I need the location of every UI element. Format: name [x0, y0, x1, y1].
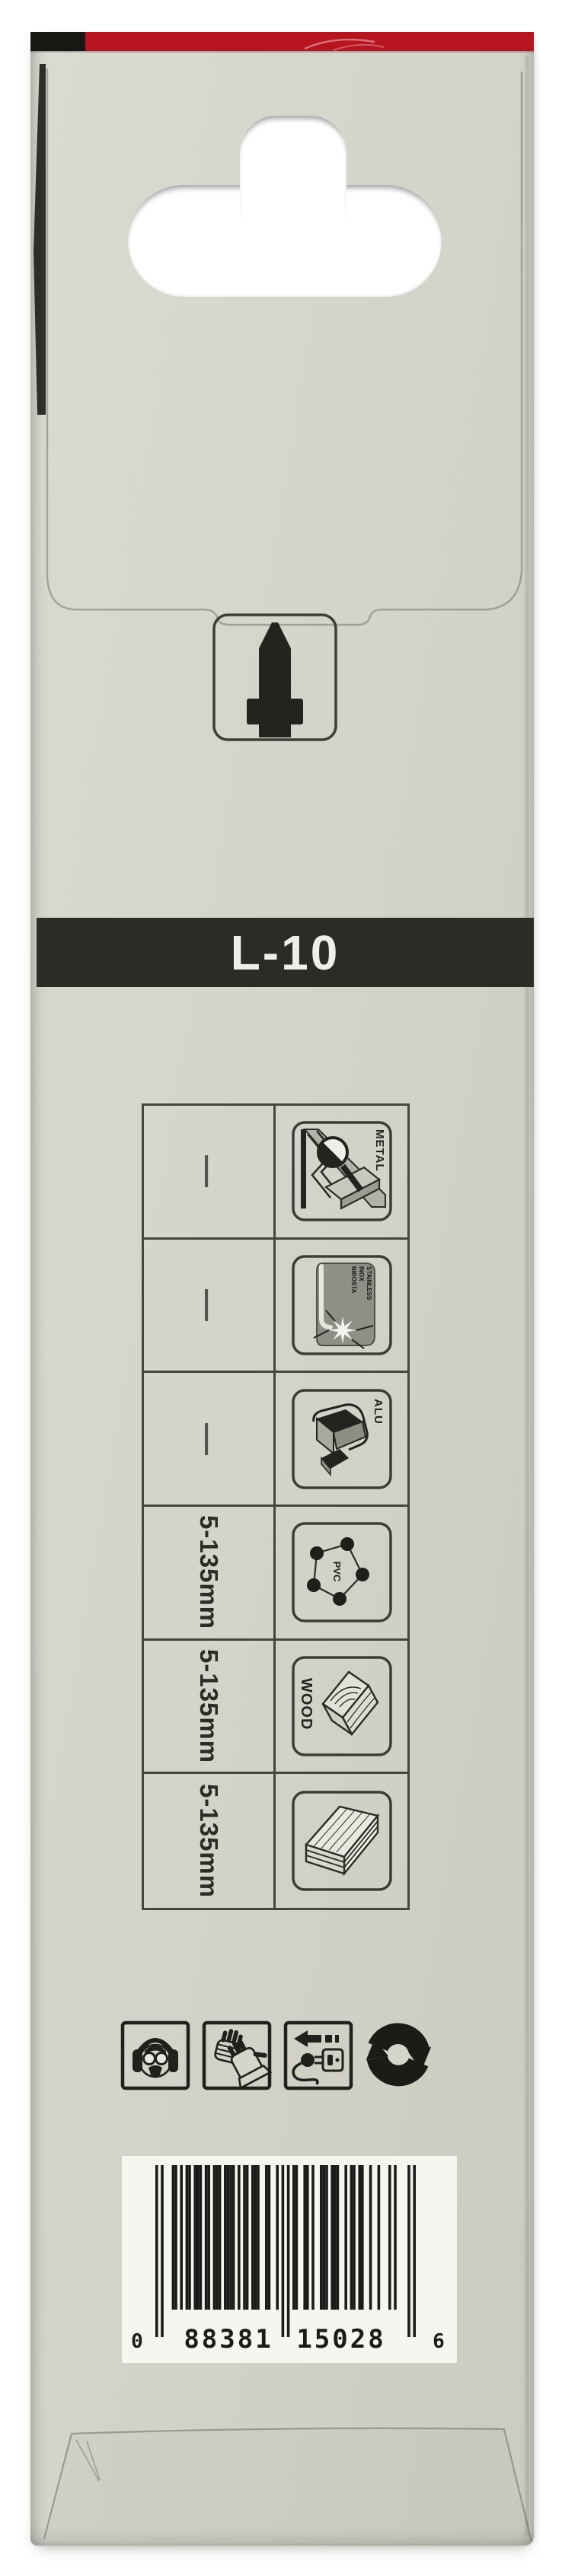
material-cell: ALU — [276, 1373, 407, 1507]
length-cell: 5-135mm — [144, 1774, 276, 1908]
protective-gloves-icon — [202, 2020, 272, 2090]
length-cell: — — [144, 1240, 276, 1374]
laminate-icon — [291, 1790, 393, 1892]
length-cell: — — [144, 1106, 276, 1240]
unplug-power-icon — [283, 2020, 353, 2090]
barcode-digits-group1: 88381 — [184, 2324, 273, 2355]
length-cell: 5-135mm — [144, 1507, 276, 1641]
barcode: 0 88381 15028 6 — [122, 2156, 457, 2363]
material-cell: STAINLESS INOX NIROSTA — [276, 1240, 407, 1374]
bottom-flap-outline — [44, 2428, 532, 2542]
barcode-digit-left: 0 — [131, 2330, 143, 2353]
length-value: 5-135mm — [194, 1515, 223, 1629]
material-cell: PVC — [276, 1507, 407, 1641]
length-cell: 5-135mm — [144, 1641, 276, 1775]
wood-label: WOOD — [298, 1678, 315, 1730]
euro-slot-hole-top — [240, 116, 346, 230]
jigsaw-blade-icon — [212, 613, 338, 742]
length-value: 5-135mm — [194, 1784, 223, 1898]
material-cell — [276, 1774, 407, 1908]
length-value: — — [190, 1423, 227, 1455]
stainless-icon: STAINLESS INOX NIROSTA — [291, 1254, 393, 1356]
stainless-label-line1: STAINLESS — [366, 1266, 372, 1301]
material-cell: WOOD — [276, 1641, 407, 1775]
length-value: — — [190, 1289, 227, 1321]
pvc-label: PVC — [331, 1562, 343, 1582]
length-value: — — [190, 1155, 227, 1187]
barcode-digits-group2: 15028 — [296, 2324, 385, 2355]
product-photo: L-10 — METAL — [0, 0, 562, 2576]
spec-table: — METAL — — [142, 1103, 410, 1910]
metal-icon: METAL — [291, 1120, 393, 1222]
model-label: L-10 — [231, 925, 340, 981]
front-panel-edge-sliver — [34, 64, 46, 415]
blade-package-back: L-10 — METAL — [30, 32, 534, 2546]
alu-icon: ALU — [291, 1388, 393, 1490]
material-cell: METAL — [276, 1106, 407, 1240]
pvc-icon: PVC — [291, 1521, 393, 1623]
alu-label: ALU — [372, 1399, 385, 1425]
length-cell: — — [144, 1373, 276, 1507]
model-banner: L-10 — [37, 918, 534, 987]
stainless-label-line3: NIROSTA — [350, 1266, 357, 1294]
recycling-icon — [362, 2019, 434, 2090]
wood-icon: WOOD — [291, 1655, 393, 1757]
barcode-digit-right: 6 — [433, 2330, 445, 2353]
length-value: 5-135mm — [194, 1649, 223, 1763]
metal-label: METAL — [373, 1129, 386, 1172]
stainless-label-line2: INOX — [358, 1266, 365, 1282]
hearing-and-face-protection-icon — [120, 2020, 190, 2090]
